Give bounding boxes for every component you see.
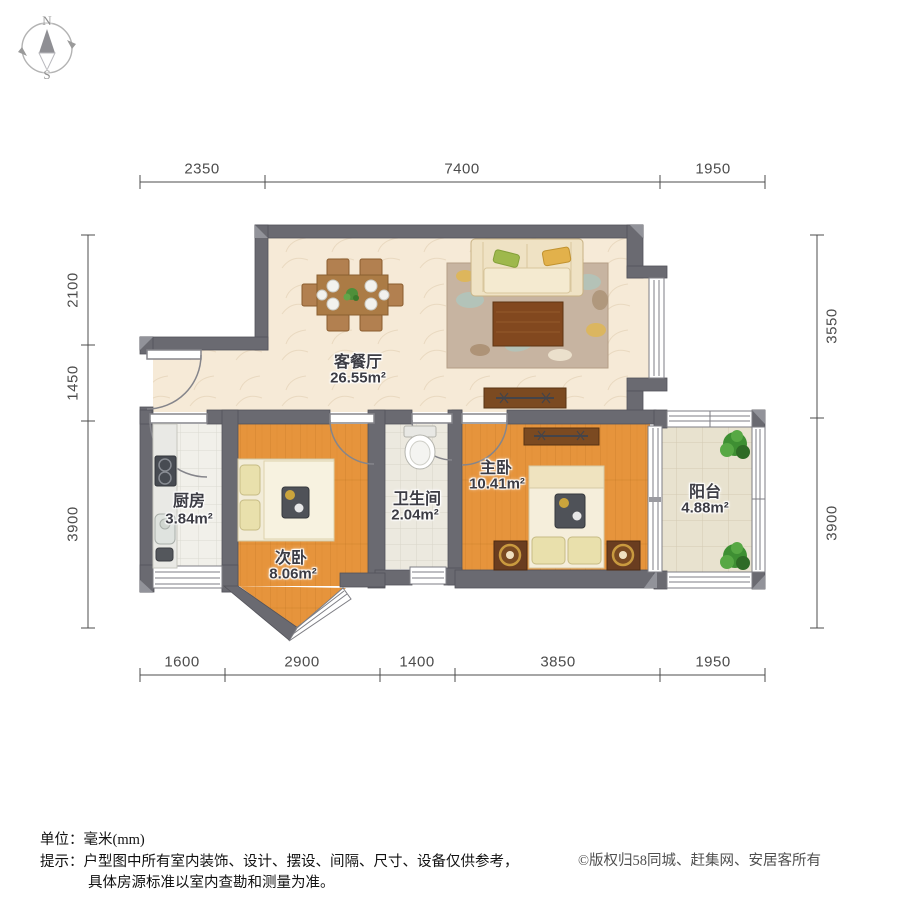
room-area-kitchen: 3.84m²: [165, 511, 213, 528]
master-tv-cabinet: [524, 428, 599, 445]
room-label-master-bedroom: 主卧: [480, 454, 512, 478]
floorplan-page: N S 2350 7400 1950 1600 2900 1400 3850 1…: [0, 0, 900, 900]
floorplan-drawing: [0, 0, 900, 900]
living-room-window: [649, 278, 664, 378]
master-bed: [529, 466, 604, 568]
compass-north-label: N: [42, 13, 51, 29]
dim-top-3: 1950: [695, 161, 730, 178]
room-label-kitchen: 厨房: [173, 487, 205, 511]
nightstand-left: [494, 541, 527, 570]
bathroom-window: [410, 567, 446, 584]
balcony-door-window: [648, 426, 662, 572]
nightstand-right: [607, 541, 640, 570]
pillow: [240, 500, 260, 530]
tv-console: [484, 388, 566, 408]
pillow: [240, 465, 260, 495]
dim-right-1: 3550: [824, 308, 841, 343]
room-label-living-dining: 客餐厅: [334, 348, 382, 372]
dim-top-1: 2350: [184, 161, 219, 178]
room-area-bathroom: 2.04m²: [391, 507, 439, 524]
dim-bottom-5: 1950: [695, 654, 730, 671]
second-bedroom-bed: [238, 459, 334, 541]
disclaimer-line1: 提示：户型图中所有室内装饰、设计、摆设、间隔、尺寸、设备仅供参考，: [40, 850, 519, 871]
dim-left-3: 3900: [65, 506, 82, 541]
compass-south-label: S: [43, 67, 50, 83]
copyright-note: ©版权归58同城、赶集网、安居客所有: [578, 849, 821, 870]
toilet-icon: [404, 426, 436, 469]
room-area-master-bedroom: 10.41m²: [469, 476, 525, 493]
unit-note: 单位：毫米(mm): [40, 828, 145, 849]
pillow: [532, 537, 565, 564]
sofa: [471, 239, 583, 296]
room-label-balcony: 阳台: [689, 478, 721, 502]
room-area-balcony: 4.88m²: [681, 500, 729, 517]
disclaimer-line2: 具体房源标准以室内查勘和测量为准。: [88, 871, 335, 892]
dim-bottom-3: 1400: [399, 654, 434, 671]
pillow: [568, 537, 601, 564]
room-area-second-bedroom: 8.06m²: [269, 566, 317, 583]
kitchen-window: [153, 566, 222, 588]
dim-right-2: 3900: [824, 505, 841, 540]
room-label-bathroom: 卫生间: [393, 485, 441, 509]
dim-bottom-4: 3850: [540, 654, 575, 671]
balcony-right-window: [752, 427, 765, 572]
room-area-living-dining: 26.55m²: [330, 370, 386, 387]
room-label-second-bedroom: 次卧: [275, 544, 307, 568]
compass-icon: [18, 23, 76, 73]
dim-bottom-1: 1600: [164, 654, 199, 671]
dim-top-2: 7400: [444, 161, 479, 178]
coffee-table: [493, 302, 563, 346]
dim-left-1: 2100: [65, 272, 82, 307]
balcony-top-window: [667, 411, 752, 427]
balcony-bottom-window: [667, 572, 752, 588]
dim-bottom-2: 2900: [284, 654, 319, 671]
dim-left-2: 1450: [65, 365, 82, 400]
